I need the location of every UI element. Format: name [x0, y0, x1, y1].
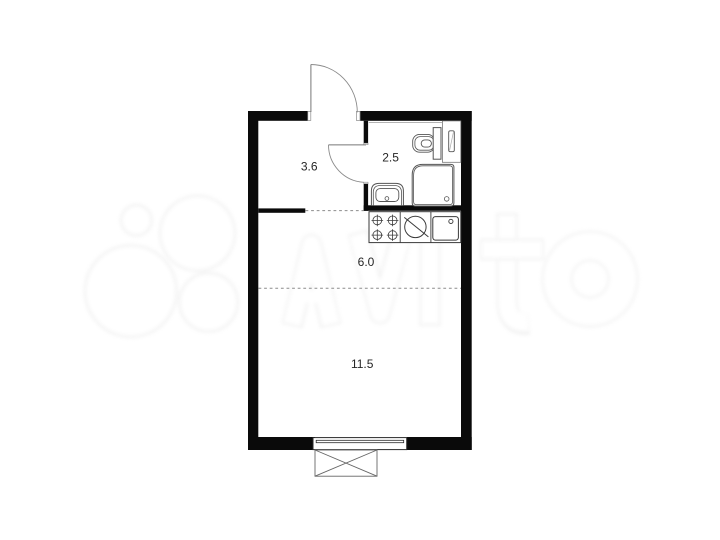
svg-text:2.5: 2.5	[382, 151, 399, 165]
svg-text:11.5: 11.5	[351, 357, 374, 371]
svg-text:3.6: 3.6	[301, 159, 318, 173]
svg-text:6.0: 6.0	[358, 255, 375, 269]
